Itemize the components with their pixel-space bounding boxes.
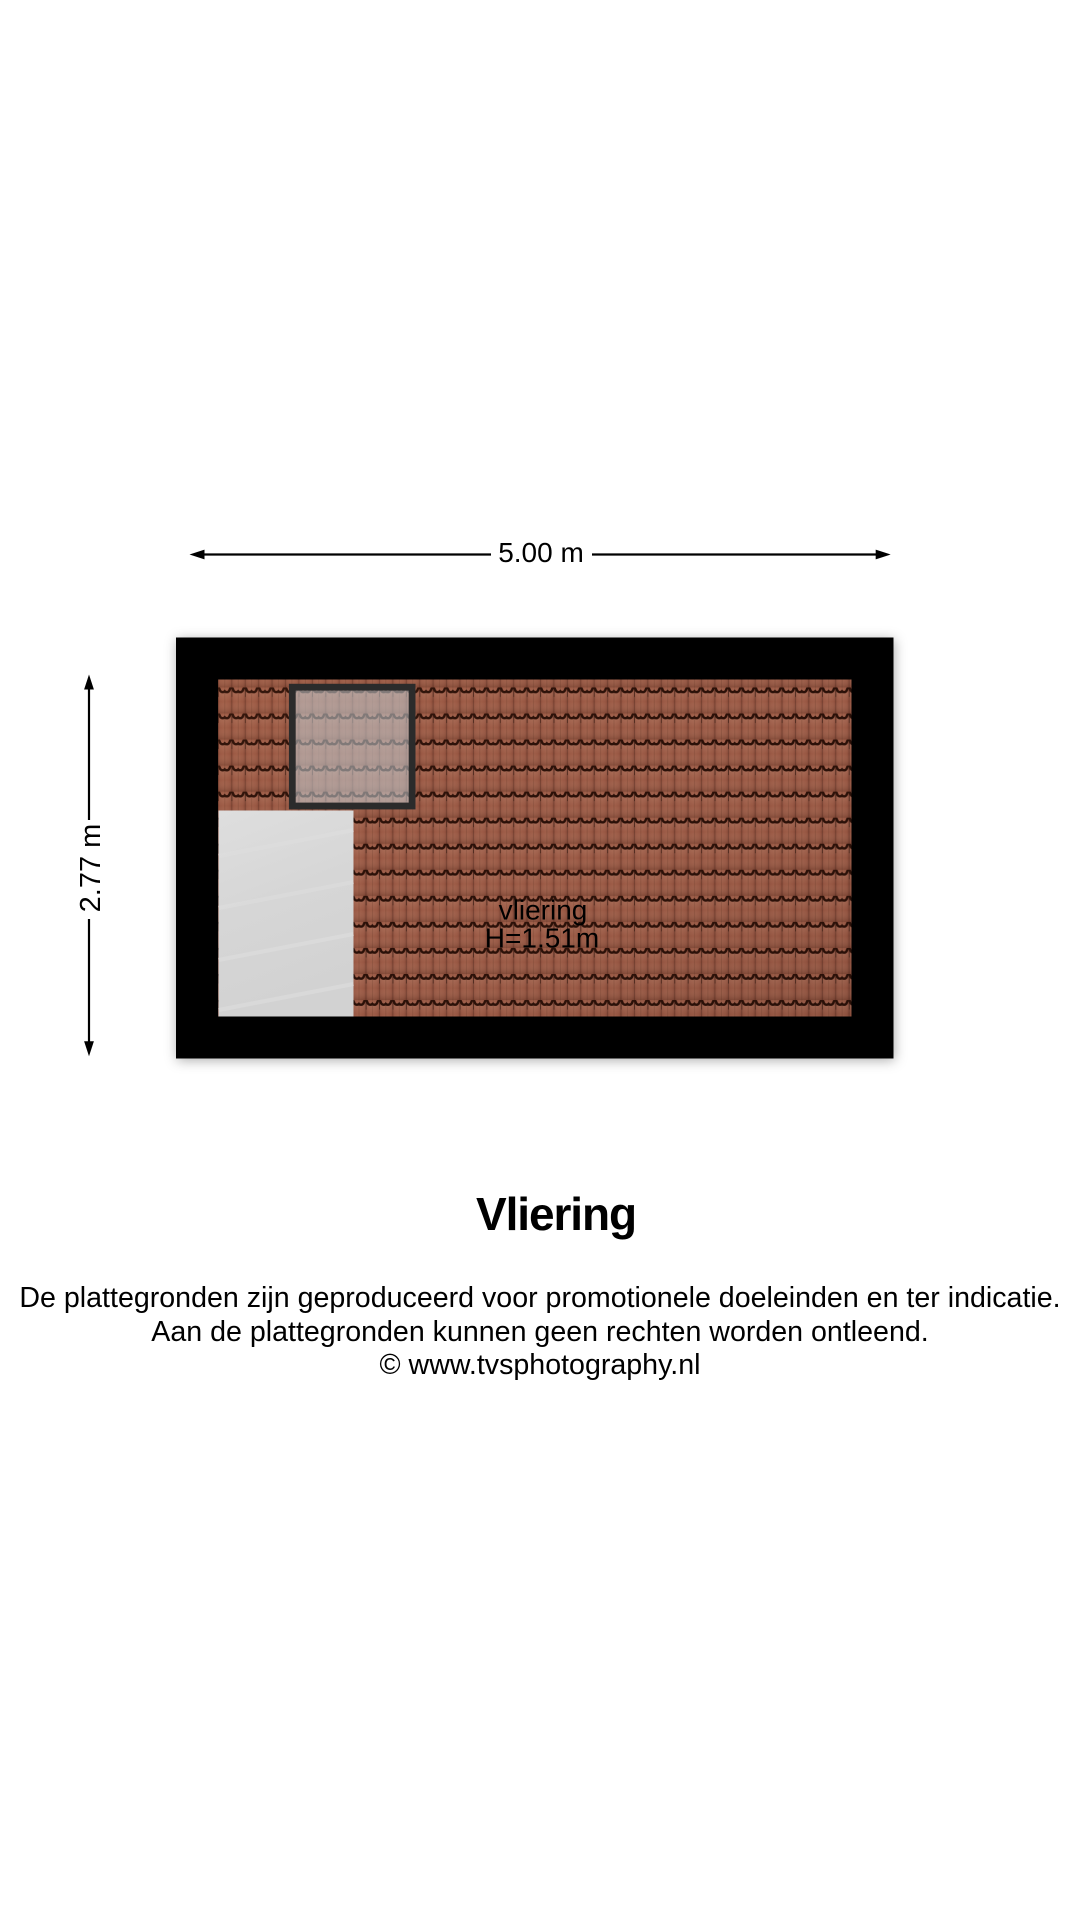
- svg-text:2.77 m: 2.77 m: [75, 824, 107, 913]
- svg-text:vliering: vliering: [499, 895, 588, 926]
- svg-text:H=1.51m: H=1.51m: [485, 923, 599, 954]
- svg-text:5.00 m: 5.00 m: [498, 537, 584, 568]
